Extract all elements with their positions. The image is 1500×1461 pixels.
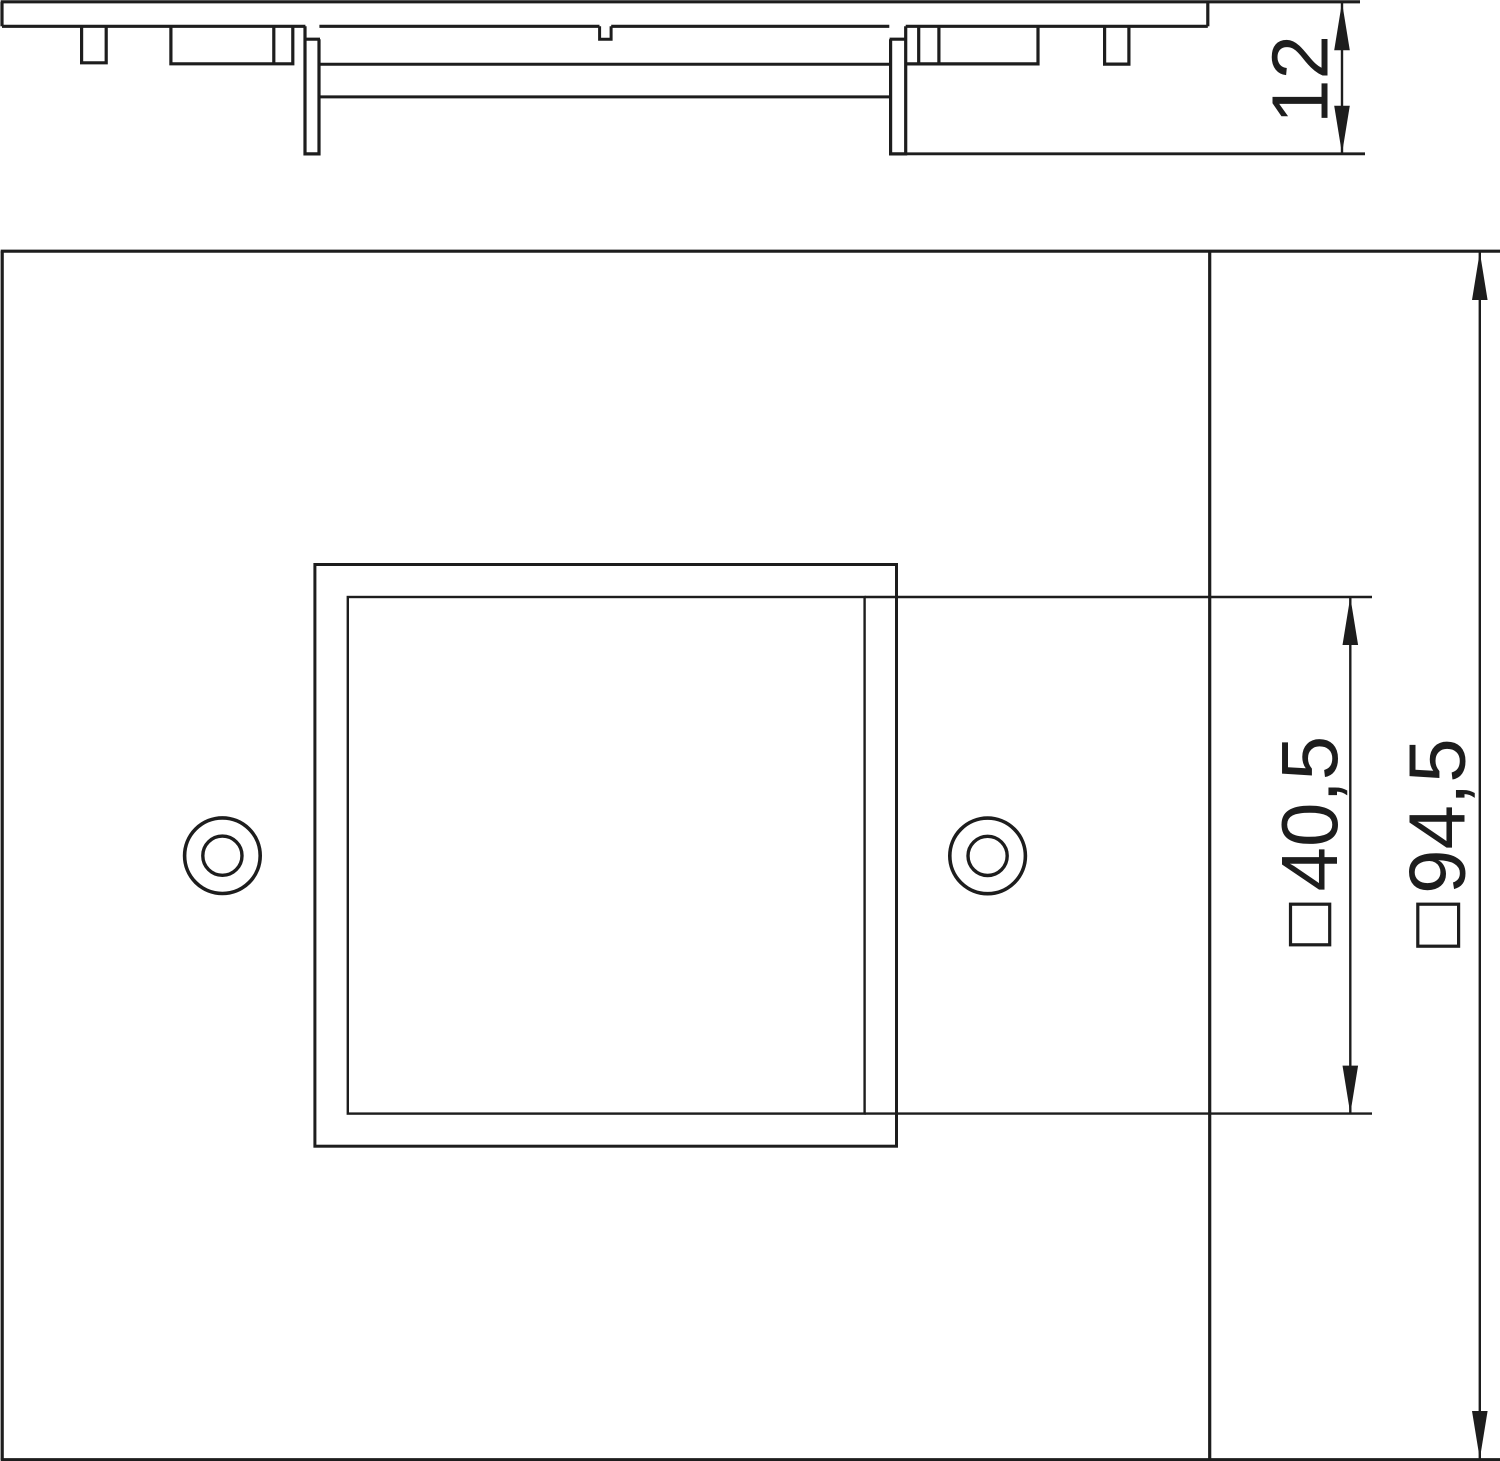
svg-text:94,5: 94,5 [1393, 738, 1482, 894]
svg-text:12: 12 [1256, 35, 1345, 124]
svg-text:40,5: 40,5 [1265, 736, 1354, 892]
